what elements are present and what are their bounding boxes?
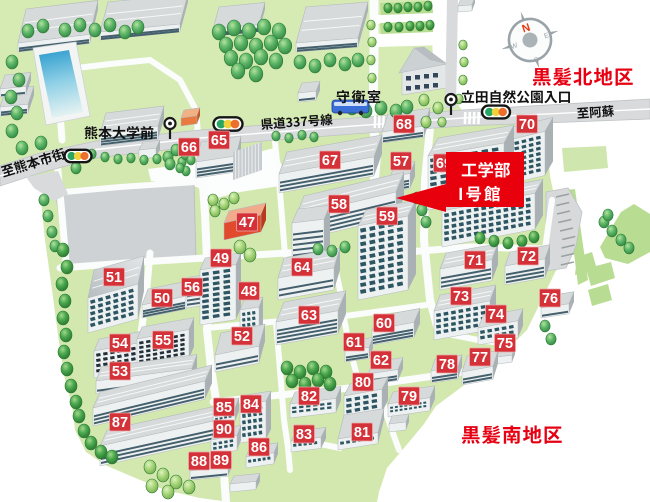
svg-text:66: 66 — [181, 140, 197, 156]
svg-text:83: 83 — [296, 427, 312, 443]
svg-text:50: 50 — [154, 291, 170, 307]
svg-text:82: 82 — [301, 389, 317, 405]
svg-text:61: 61 — [346, 335, 362, 351]
svg-text:63: 63 — [301, 308, 317, 324]
svg-text:88: 88 — [191, 454, 207, 470]
svg-text:55: 55 — [155, 333, 171, 349]
svg-text:62: 62 — [373, 353, 389, 369]
svg-text:47: 47 — [239, 215, 255, 231]
svg-text:81: 81 — [354, 425, 370, 441]
svg-text:54: 54 — [112, 336, 128, 352]
svg-text:49: 49 — [213, 251, 229, 267]
svg-text:60: 60 — [376, 316, 392, 332]
svg-text:79: 79 — [401, 389, 417, 405]
svg-text:65: 65 — [211, 133, 227, 149]
svg-text:84: 84 — [243, 397, 259, 413]
svg-text:85: 85 — [216, 400, 232, 416]
svg-text:68: 68 — [396, 117, 412, 133]
svg-text:78: 78 — [439, 357, 455, 373]
svg-text:89: 89 — [213, 453, 229, 469]
svg-text:77: 77 — [472, 350, 488, 366]
svg-text:64: 64 — [294, 260, 310, 276]
svg-text:71: 71 — [467, 253, 483, 269]
svg-text:87: 87 — [112, 415, 128, 431]
svg-text:74: 74 — [488, 307, 504, 323]
svg-text:51: 51 — [106, 270, 122, 286]
svg-text:48: 48 — [241, 284, 257, 300]
svg-text:72: 72 — [520, 249, 536, 265]
svg-text:59: 59 — [379, 209, 395, 225]
svg-text:86: 86 — [251, 440, 267, 456]
svg-text:56: 56 — [184, 280, 200, 296]
svg-text:67: 67 — [322, 153, 338, 169]
svg-text:70: 70 — [519, 117, 535, 133]
svg-text:75: 75 — [497, 336, 513, 352]
svg-text:57: 57 — [393, 154, 409, 170]
svg-text:80: 80 — [355, 375, 371, 391]
svg-text:90: 90 — [216, 422, 232, 438]
svg-text:58: 58 — [331, 197, 347, 213]
svg-text:52: 52 — [234, 329, 250, 345]
svg-text:53: 53 — [112, 364, 128, 380]
svg-text:73: 73 — [453, 289, 469, 305]
svg-text:76: 76 — [542, 291, 558, 307]
